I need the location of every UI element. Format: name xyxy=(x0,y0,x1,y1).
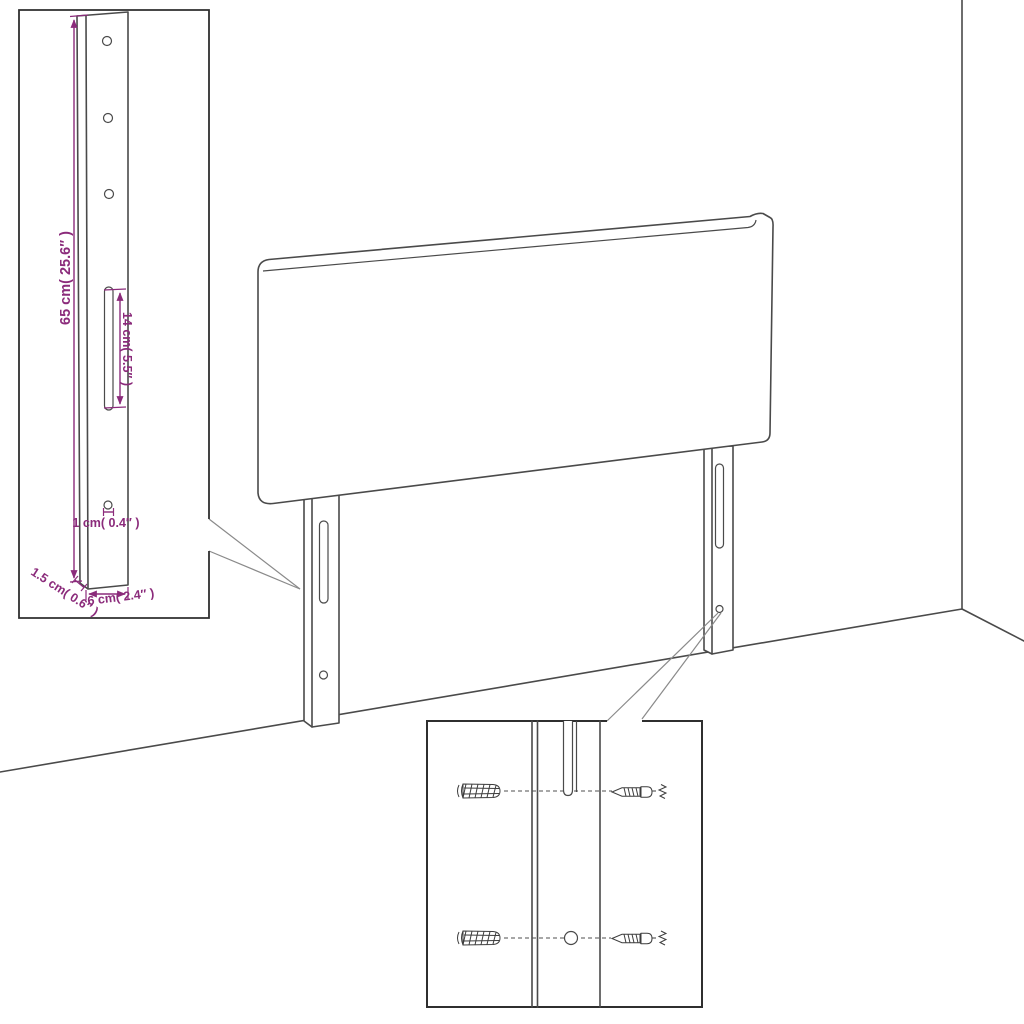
leg-slot xyxy=(105,287,114,410)
diagram-canvas: 65 cm( 25.6″ ) 14 cm( 5.5″ ) 1 cm( 0.4″ … xyxy=(0,0,1024,1024)
leg-hole-1 xyxy=(103,37,112,46)
diagram-stage: 65 cm( 25.6″ ) 14 cm( 5.5″ ) 1 cm( 0.4″ … xyxy=(0,0,1024,1024)
wall-break-squiggle xyxy=(659,785,666,799)
screw-icon xyxy=(612,933,652,943)
mounting-hole xyxy=(565,932,578,945)
hole-dimension-label: 1 cm( 0.4″ ) xyxy=(72,516,139,530)
mounting-detail-view xyxy=(427,721,702,1007)
leg-hole-3 xyxy=(105,190,114,199)
headboard-drawing xyxy=(258,213,773,727)
wall-anchor-icon xyxy=(458,931,501,945)
right-leg-slot xyxy=(716,464,724,548)
mounting-leaders xyxy=(504,791,658,938)
left-leg-hole xyxy=(320,671,328,679)
wall-anchor-icon xyxy=(458,784,501,798)
leg-hole-2 xyxy=(104,114,113,123)
slot-dimension-label: 14 cm( 5.5″ ) xyxy=(120,312,134,386)
wall-break-squiggle xyxy=(659,931,666,945)
headboard-panel xyxy=(258,213,773,503)
floor-wall-edge-right xyxy=(962,609,1024,641)
width-dimension-label: 6 cm( 2.4″ ) xyxy=(87,586,155,608)
headboard-left-leg xyxy=(304,470,339,727)
floor-wall-edge-left xyxy=(0,609,962,772)
right-leg-hole xyxy=(716,606,723,613)
leg-detail-callout xyxy=(209,519,300,589)
dimension-width: 6 cm( 2.4″ ) xyxy=(86,586,155,608)
screw-icon xyxy=(612,787,652,797)
mounting-slot xyxy=(564,721,573,796)
height-dimension-label: 65 cm( 25.6″ ) xyxy=(58,231,74,325)
left-leg-slot xyxy=(320,521,329,603)
leg-small-hole xyxy=(104,501,112,509)
leg-detail-view: 65 cm( 25.6″ ) 14 cm( 5.5″ ) 1 cm( 0.4″ … xyxy=(19,10,209,619)
